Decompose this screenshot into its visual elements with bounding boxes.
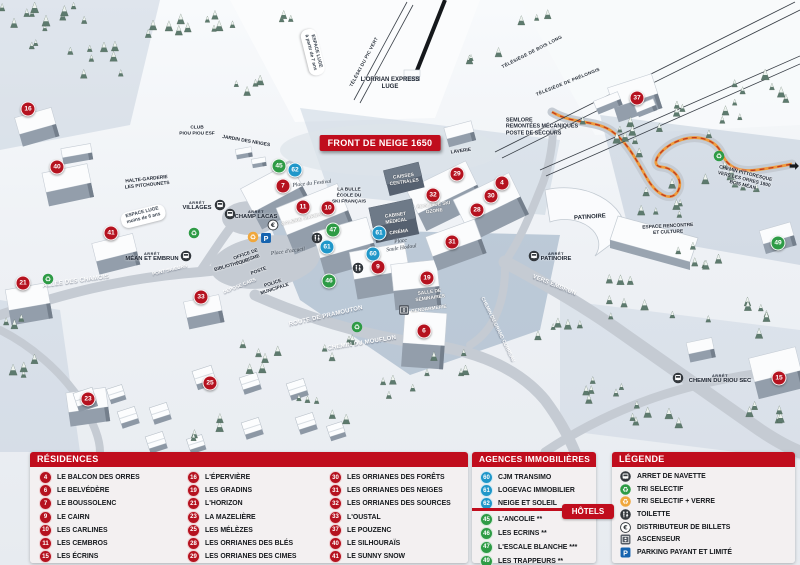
map-label: CABINET MÉDICAL <box>384 212 407 226</box>
item-number-badge: 4 <box>39 471 52 484</box>
legend-item: ♻TRI SELECTIF + VERRE <box>620 495 732 508</box>
map-label: VERS EMBRUN <box>531 274 577 298</box>
legend-item: TOILETTE <box>620 508 732 521</box>
map-marker-47: 47 <box>326 223 341 238</box>
euro-icon: € <box>268 220 279 231</box>
svg-text:♻: ♻ <box>250 232 256 241</box>
item-label: LE BOUSSOLENC <box>57 500 116 507</box>
map-label: LA BULLE ÉCOLE DU SKI FRANÇAIS <box>332 187 366 204</box>
map-marker-61: 61 <box>320 240 335 255</box>
map-marker-31: 31 <box>445 235 460 250</box>
recycle-yellow-icon: ♻ <box>620 496 631 507</box>
bus-icon <box>673 373 684 384</box>
bus-stop-label: ARRÊTVILLAGES <box>183 201 212 211</box>
item-label: LE SILHOURAÏS <box>347 540 400 547</box>
map-label: POSTE <box>250 267 267 278</box>
map-label: PONT SKIEURS <box>152 264 188 278</box>
map-label: DÉPOSE CARS <box>223 278 258 296</box>
bus-stop-label: ARRÊTMÉAN ET EMBRUN <box>125 252 178 262</box>
map-marker-6: 6 <box>417 324 432 339</box>
item-number-badge: 28 <box>187 537 200 550</box>
list-item: 32LES ORRIANES DES SOURCES <box>329 497 451 510</box>
legend-label: ARRET DE NAVETTE <box>637 473 706 480</box>
item-label: LES CEMBROS <box>57 540 108 547</box>
list-item: 49LES TRAPPEURS ** <box>480 554 577 565</box>
hotels-tab-title: HÔTELS <box>562 504 614 519</box>
legend-label: TRI SELECTIF + VERRE <box>637 498 715 505</box>
lift-icon <box>620 534 631 545</box>
list-item: 47L'ESCALE BLANCHE *** <box>480 541 577 555</box>
map-label: CAISSES CENTRALES <box>389 172 420 187</box>
map-marker-32: 32 <box>426 188 441 203</box>
item-number-badge: 29 <box>187 550 200 563</box>
bus-icon <box>225 209 236 220</box>
front-de-neige-banner: FRONT DE NEIGE 1650 <box>320 135 441 151</box>
item-label: LES MÉLÈZES <box>205 527 253 534</box>
map-marker-11: 11 <box>296 200 311 215</box>
item-number-badge: 9 <box>39 511 52 524</box>
item-number-badge: 49 <box>480 555 493 565</box>
map-label: CLUB PIOU PIOU ESF <box>179 125 214 137</box>
item-label: LES ORRIANES DES BLÉS <box>205 540 293 547</box>
item-number-badge: 19 <box>187 484 200 497</box>
list-item: 7LE BOUSSOLENC <box>39 497 140 510</box>
residences-panel-title: RÉSIDENCES <box>30 452 468 467</box>
map-label: TÉLÉSIÈGE DE BOIS LONG <box>501 34 563 69</box>
list-item: 46LES ECRINS ** <box>480 527 577 541</box>
legend-label: DISTRIBUTEUR DE BILLETS <box>637 524 730 531</box>
map-label: GENDARMERIE <box>411 305 447 316</box>
residences-column-1: 4LE BALCON DES ORRES6LE BELVÉDÈRE7LE BOU… <box>39 471 140 563</box>
resort-map-page: FRONT DE NEIGE 1650 16404121332325456271… <box>0 0 800 565</box>
list-item: 30LES ORRIANES DES FORÊTS <box>329 471 451 484</box>
bus-stop-name: CHEMIN DU RIOU SEC <box>689 378 751 384</box>
item-label: LES TRAPPEURS ** <box>498 558 563 565</box>
item-number-badge: 40 <box>329 537 342 550</box>
item-number-badge: 33 <box>329 511 342 524</box>
lift-icon <box>399 305 410 316</box>
item-label: L'ESCALE BLANCHE *** <box>498 544 577 551</box>
item-number-badge: 31 <box>329 484 342 497</box>
list-item: 60CJM TRANSIMO <box>480 471 575 484</box>
bus-stop-name: PATINOIRE <box>541 256 572 262</box>
list-item: 11LES CEMBROS <box>39 537 140 550</box>
map-marker-46: 46 <box>322 274 337 289</box>
list-item: 21L'HORIZON <box>187 497 297 510</box>
map-label: CINÉMA <box>389 229 409 237</box>
map-label: SALLE DE SÉMINAIRES <box>414 288 445 304</box>
map-label: HALTE-GARDERIE LES PITCHOUNETS <box>124 175 170 191</box>
map-label: Place d'accueil <box>271 246 306 257</box>
parking-icon: P <box>261 233 272 244</box>
list-item: 37LE POUZENC <box>329 524 451 537</box>
map-label: JARDIN DES NEIGES <box>222 135 271 149</box>
svg-text:€: € <box>622 524 627 531</box>
map-label: PATINOIRE <box>574 213 606 222</box>
bus-stop-label: ARRÊTCHEMIN DU RIOU SEC <box>689 374 751 384</box>
residences-panel: RÉSIDENCES 4LE BALCON DES ORRES6LE BELVÉ… <box>30 452 468 563</box>
item-number-badge: 15 <box>39 550 52 563</box>
item-label: LES CARLINES <box>57 527 108 534</box>
list-item: 6LE BELVÉDÈRE <box>39 484 140 497</box>
list-item: 23LA MAZELIÈRE <box>187 511 297 524</box>
list-item: 31LES ORRIANES DES NEIGES <box>329 484 451 497</box>
list-item: 19LES GRADINS <box>187 484 297 497</box>
map-label: CHEMIN PITTORESQUE VERS LES ORRES 1800 B… <box>715 165 772 195</box>
item-number-badge: 61 <box>480 484 493 497</box>
item-label: LE CAIRN <box>57 514 90 521</box>
map-label: ESPACE LUGE moins de 6 ans <box>119 203 166 229</box>
recycle-yellow-icon: ♻ <box>248 232 259 243</box>
svg-text:♻: ♻ <box>622 497 628 506</box>
bus-stop-label: ARRÊTPATINOIRE <box>541 252 572 262</box>
list-item: 15LES ÉCRINS <box>39 550 140 563</box>
item-number-badge: 41 <box>329 550 342 563</box>
svg-text:♻: ♻ <box>354 322 360 331</box>
map-marker-29: 29 <box>450 167 465 182</box>
map-marker-10: 10 <box>321 201 336 216</box>
svg-text:♻: ♻ <box>45 274 51 283</box>
legende-list: ARRET DE NAVETTE♻TRI SELECTIF♻TRI SELECT… <box>620 470 732 559</box>
item-label: LOGEVAC IMMOBILIER <box>498 487 575 494</box>
legend-label: TRI SELECTIF <box>637 486 683 493</box>
list-item: 10LES CARLINES <box>39 524 140 537</box>
residences-column-3: 30LES ORRIANES DES FORÊTS31LES ORRIANES … <box>329 471 451 563</box>
item-label: LE SUNNY SNOW <box>347 553 405 560</box>
legend-item: ASCENSEUR <box>620 533 732 546</box>
map-marker-21: 21 <box>16 276 31 291</box>
map-label: CHEMIN DU MOUFLON <box>327 335 397 353</box>
map-marker-15: 15 <box>772 371 787 386</box>
item-label: L'ÉPERVIÈRE <box>205 474 250 481</box>
map-marker-4: 4 <box>495 176 510 191</box>
recycle-green-icon: ♻ <box>43 274 54 285</box>
map-marker-16: 16 <box>21 102 36 117</box>
list-item: 40LE SILHOURAÏS <box>329 537 451 550</box>
legende-panel-title: LÉGENDE <box>612 452 795 467</box>
item-number-badge: 45 <box>480 513 493 526</box>
map-label: LAVERIE <box>450 148 471 157</box>
map-marker-37: 37 <box>630 91 645 106</box>
map-label: CHEMIN DU GRAND CORREAU <box>479 297 516 364</box>
map-marker-23: 23 <box>81 392 96 407</box>
list-item: 28LES ORRIANES DES BLÉS <box>187 537 297 550</box>
item-label: LES ORRIANES DES FORÊTS <box>347 474 445 481</box>
item-number-badge: 7 <box>39 497 52 510</box>
item-label: L'OUSTAL <box>347 514 381 521</box>
item-label: LES ÉCRINS <box>57 553 98 560</box>
map-marker-28: 28 <box>470 203 485 218</box>
map-marker-61: 61 <box>372 226 387 241</box>
bus-icon <box>620 471 631 482</box>
map-label: Place Saule Hodoul <box>385 236 417 254</box>
item-number-badge: 25 <box>187 524 200 537</box>
item-label: LES ORRIANES DES CIMES <box>205 553 297 560</box>
map-label: SEMLORE REMONTÉES MÉCANIQUES POSTE DE SE… <box>506 117 578 136</box>
item-number-badge: 30 <box>329 471 342 484</box>
item-number-badge: 11 <box>39 537 52 550</box>
legend-item: ♻TRI SELECTIF <box>620 483 732 496</box>
list-item: 33L'OUSTAL <box>329 511 451 524</box>
list-item: 25LES MÉLÈZES <box>187 524 297 537</box>
recycle-green-icon: ♻ <box>189 228 200 239</box>
map-label: L'ORRIAN EXPRESS LUGE <box>361 77 420 91</box>
item-number-badge: 32 <box>329 497 342 510</box>
item-number-badge: 37 <box>329 524 342 537</box>
item-number-badge: 46 <box>480 527 493 540</box>
legende-panel: LÉGENDE ARRET DE NAVETTE♻TRI SELECTIF♻TR… <box>612 452 795 563</box>
map-label: TÉLÉSIÈGE DE PRÉLONGIS <box>535 67 600 98</box>
legend-item: ARRET DE NAVETTE <box>620 470 732 483</box>
arrow-right-icon <box>789 161 800 172</box>
item-label: CJM TRANSIMO <box>498 474 551 481</box>
map-marker-25: 25 <box>203 376 218 391</box>
parking-icon: P <box>620 547 631 558</box>
legend-label: TOILETTE <box>637 511 670 518</box>
map-marker-33: 33 <box>194 290 209 305</box>
map-marker-30: 30 <box>484 189 499 204</box>
map-marker-40: 40 <box>50 160 65 175</box>
map-marker-41: 41 <box>104 226 119 241</box>
map-marker-9: 9 <box>371 260 386 275</box>
item-label: LA MAZELIÈRE <box>205 514 256 521</box>
map-marker-7: 7 <box>276 179 291 194</box>
item-label: LES GRADINS <box>205 487 252 494</box>
svg-text:€: € <box>270 222 275 229</box>
map-label: ÉCOLE DE SKI OZONE <box>416 201 451 217</box>
item-label: LES ECRINS ** <box>498 530 547 537</box>
map-label: ESPACE LUGE à partir de 7 ans <box>300 27 326 76</box>
wc-icon <box>620 509 631 520</box>
wc-icon <box>353 263 364 274</box>
svg-text:P: P <box>623 549 628 557</box>
euro-icon: € <box>620 522 631 533</box>
item-number-badge: 16 <box>187 471 200 484</box>
list-item: 29LES ORRIANES DES CIMES <box>187 550 297 563</box>
item-label: L'HORIZON <box>205 500 243 507</box>
agences-list: 60CJM TRANSIMO61LOGEVAC IMMOBILIER62NEIG… <box>480 471 575 511</box>
item-number-badge: 10 <box>39 524 52 537</box>
bus-icon <box>529 251 540 262</box>
list-item: 9LE CAIRN <box>39 511 140 524</box>
list-item: 41LE SUNNY SNOW <box>329 550 451 563</box>
list-item: 61LOGEVAC IMMOBILIER <box>480 484 575 497</box>
item-label: LES ORRIANES DES SOURCES <box>347 500 451 507</box>
bus-stop-name: VILLAGES <box>183 205 212 211</box>
bus-stop-name: MÉAN ET EMBRUN <box>125 256 178 262</box>
svg-text:♻: ♻ <box>191 228 197 237</box>
item-label: LE BALCON DES ORRES <box>57 474 140 481</box>
map-label: ESPACE RENCONTRE ET CULTURE <box>642 223 694 237</box>
hotels-list: 45L'ANCOLIE **46LES ECRINS **47L'ESCALE … <box>480 513 577 565</box>
item-label: L'ANCOLIE ** <box>498 516 542 523</box>
recycle-green-icon: ♻ <box>620 484 631 495</box>
recycle-green-icon: ♻ <box>714 151 725 162</box>
legend-label: ASCENSEUR <box>637 536 680 543</box>
agences-panel-title: AGENCES IMMOBILIÈRES <box>472 452 596 467</box>
svg-text:P: P <box>264 235 269 243</box>
recycle-green-icon: ♻ <box>352 322 363 333</box>
item-number-badge: 23 <box>187 511 200 524</box>
map-marker-62: 62 <box>288 163 303 178</box>
legend-item: PPARKING PAYANT ET LIMITÉ <box>620 546 732 559</box>
item-label: LE BELVÉDÈRE <box>57 487 109 494</box>
item-label: NEIGE ET SOLEIL <box>498 500 557 507</box>
item-label: LES ORRIANES DES NEIGES <box>347 487 443 494</box>
item-label: LE POUZENC <box>347 527 391 534</box>
bus-icon <box>181 251 192 262</box>
map-marker-19: 19 <box>420 271 435 286</box>
item-number-badge: 6 <box>39 484 52 497</box>
map-marker-49: 49 <box>771 236 786 251</box>
map-marker-45: 45 <box>272 159 287 174</box>
map-label: OFFICE DE TOURISME <box>233 248 261 268</box>
legend-label: PARKING PAYANT ET LIMITÉ <box>637 549 732 556</box>
item-number-badge: 47 <box>480 541 493 554</box>
map-label: Place du Festival <box>292 179 332 190</box>
list-item: 16L'ÉPERVIÈRE <box>187 471 297 484</box>
item-number-badge: 60 <box>480 471 493 484</box>
svg-text:♻: ♻ <box>622 484 628 493</box>
map-label: POLICE MUNICIPALE <box>258 277 290 297</box>
list-item: 4LE BALCON DES ORRES <box>39 471 140 484</box>
svg-text:♻: ♻ <box>716 151 722 160</box>
residences-column-2: 16L'ÉPERVIÈRE19LES GRADINS21L'HORIZON23L… <box>187 471 297 563</box>
legend-item: €DISTRIBUTEUR DE BILLETS <box>620 521 732 534</box>
item-number-badge: 21 <box>187 497 200 510</box>
